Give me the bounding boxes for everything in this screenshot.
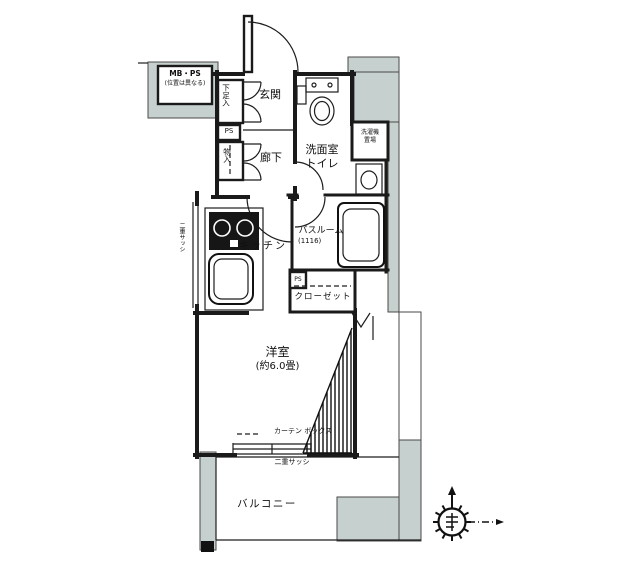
room-label-main: 洋室 (約6.0畳) — [235, 344, 320, 374]
room-label-bath: バスルーム (1116) — [294, 226, 348, 245]
room-label-rouka: 廊下 — [248, 151, 294, 165]
laundry-line1: 洗濯機 — [352, 129, 388, 137]
shoe-box-label: 下足入 — [222, 84, 230, 107]
mb-ps-line1: MB・PS — [158, 69, 212, 80]
room-label-washroom: 洗面室 トイレ — [294, 143, 350, 171]
room-label-balcony: バルコニー — [231, 498, 303, 511]
mb-ps-line2: (位置は異なる) — [158, 80, 212, 88]
main-window — [233, 443, 311, 455]
entrance-door-arc — [248, 22, 298, 72]
toilet-icon — [297, 78, 338, 125]
double-sash-side-label: 二重サッシ — [178, 222, 184, 252]
washroom-line1: 洗面室 — [294, 143, 350, 157]
laundry-label: 洗濯機 置場 — [352, 129, 388, 145]
room-label-kitchen: キッチン — [228, 241, 298, 254]
main-room-line2: (約6.0畳) — [235, 360, 320, 374]
double-sash-window-label: 二重サッシ — [266, 458, 318, 467]
sink-icon — [209, 254, 253, 304]
bath-line2: (1116) — [294, 237, 348, 245]
entrance-door-panel — [244, 16, 252, 72]
bath-door-arc — [295, 197, 325, 227]
exterior-notch — [399, 312, 421, 440]
balcony-pillar — [200, 452, 216, 550]
room-label-closet: クローゼット — [294, 292, 352, 303]
ps-upper-label: PS — [218, 127, 240, 136]
mono-ire-label: 物入 — [223, 148, 231, 163]
vanity-icon — [356, 164, 382, 194]
side-window — [193, 202, 198, 308]
main-room-line1: 洋室 — [235, 344, 320, 360]
compass-icon — [433, 486, 504, 541]
ps-lower-label: PS — [290, 276, 306, 284]
bath-line1: バスルーム — [294, 226, 348, 237]
curtain-box-label: カーテン ボックス — [263, 427, 343, 436]
washroom-line2: トイレ — [294, 157, 350, 171]
room-label-genkan: 玄関 — [246, 88, 294, 102]
pillar-foot — [201, 541, 214, 552]
floorplan-drawing — [0, 0, 640, 569]
mb-ps-label: MB・PS (位置は異なる) — [158, 69, 212, 88]
laundry-line2: 置場 — [352, 137, 388, 145]
floorplan-page: MB・PS (位置は異なる) 下足入 玄関 PS 物入 廊下 洗面室 トイレ 洗… — [0, 0, 640, 569]
